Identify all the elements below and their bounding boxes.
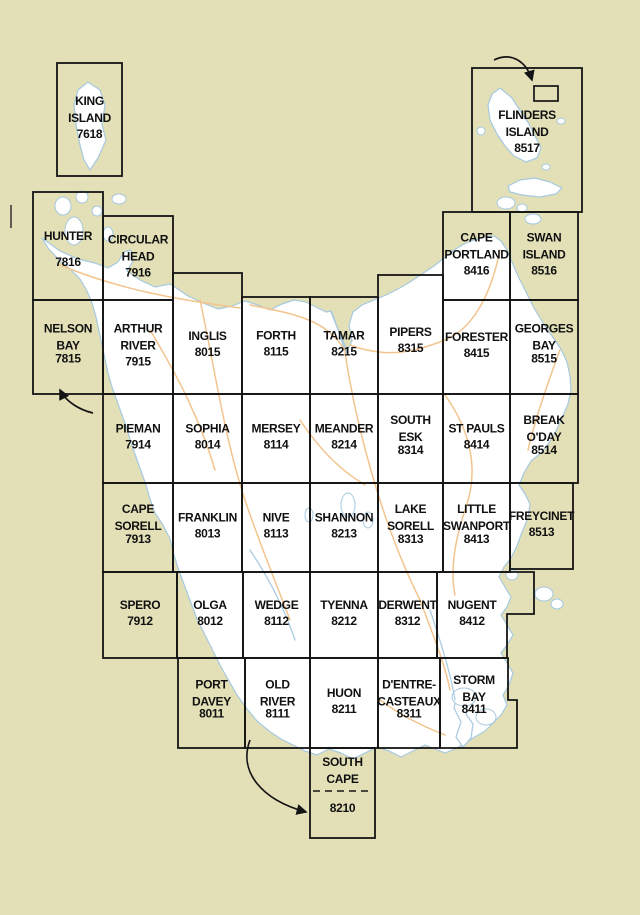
map-canvas: KINGISLAND7618FLINDERSISLAND8517HUNTER78… xyxy=(0,0,640,915)
map-index-tasmania: KINGISLAND7618FLINDERSISLAND8517HUNTER78… xyxy=(0,0,640,915)
